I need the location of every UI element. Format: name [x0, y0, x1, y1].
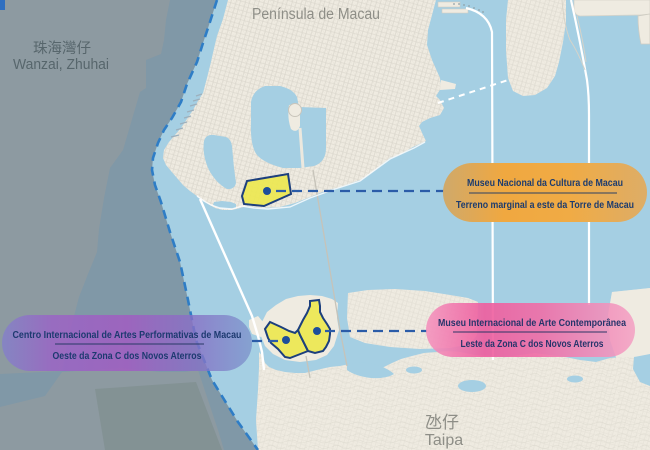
svg-text:Taipa: Taipa	[425, 432, 463, 449]
svg-text:Museu Internacional de Arte Co: Museu Internacional de Arte Contemporâne…	[438, 317, 626, 329]
svg-text:Centro Internacional de Artes: Centro Internacional de Artes Performati…	[13, 329, 242, 341]
svg-text:Museu Nacional da Cultura de M: Museu Nacional da Cultura de Macau	[467, 177, 623, 189]
svg-text:Península de Macau: Península de Macau	[252, 6, 380, 23]
svg-text:氹仔: 氹仔	[425, 413, 459, 432]
svg-text:Leste da Zona C dos Novos Ater: Leste da Zona C dos Novos Aterros	[461, 338, 604, 350]
svg-text:Wanzai, Zhuhai: Wanzai, Zhuhai	[13, 56, 109, 73]
svg-text:珠海灣仔: 珠海灣仔	[33, 40, 91, 57]
svg-text:Terreno marginal a este da Tor: Terreno marginal a este da Torre de Maca…	[456, 199, 634, 211]
svg-text:Oeste da Zona C dos Novos Ater: Oeste da Zona C dos Novos Aterros	[53, 350, 202, 362]
